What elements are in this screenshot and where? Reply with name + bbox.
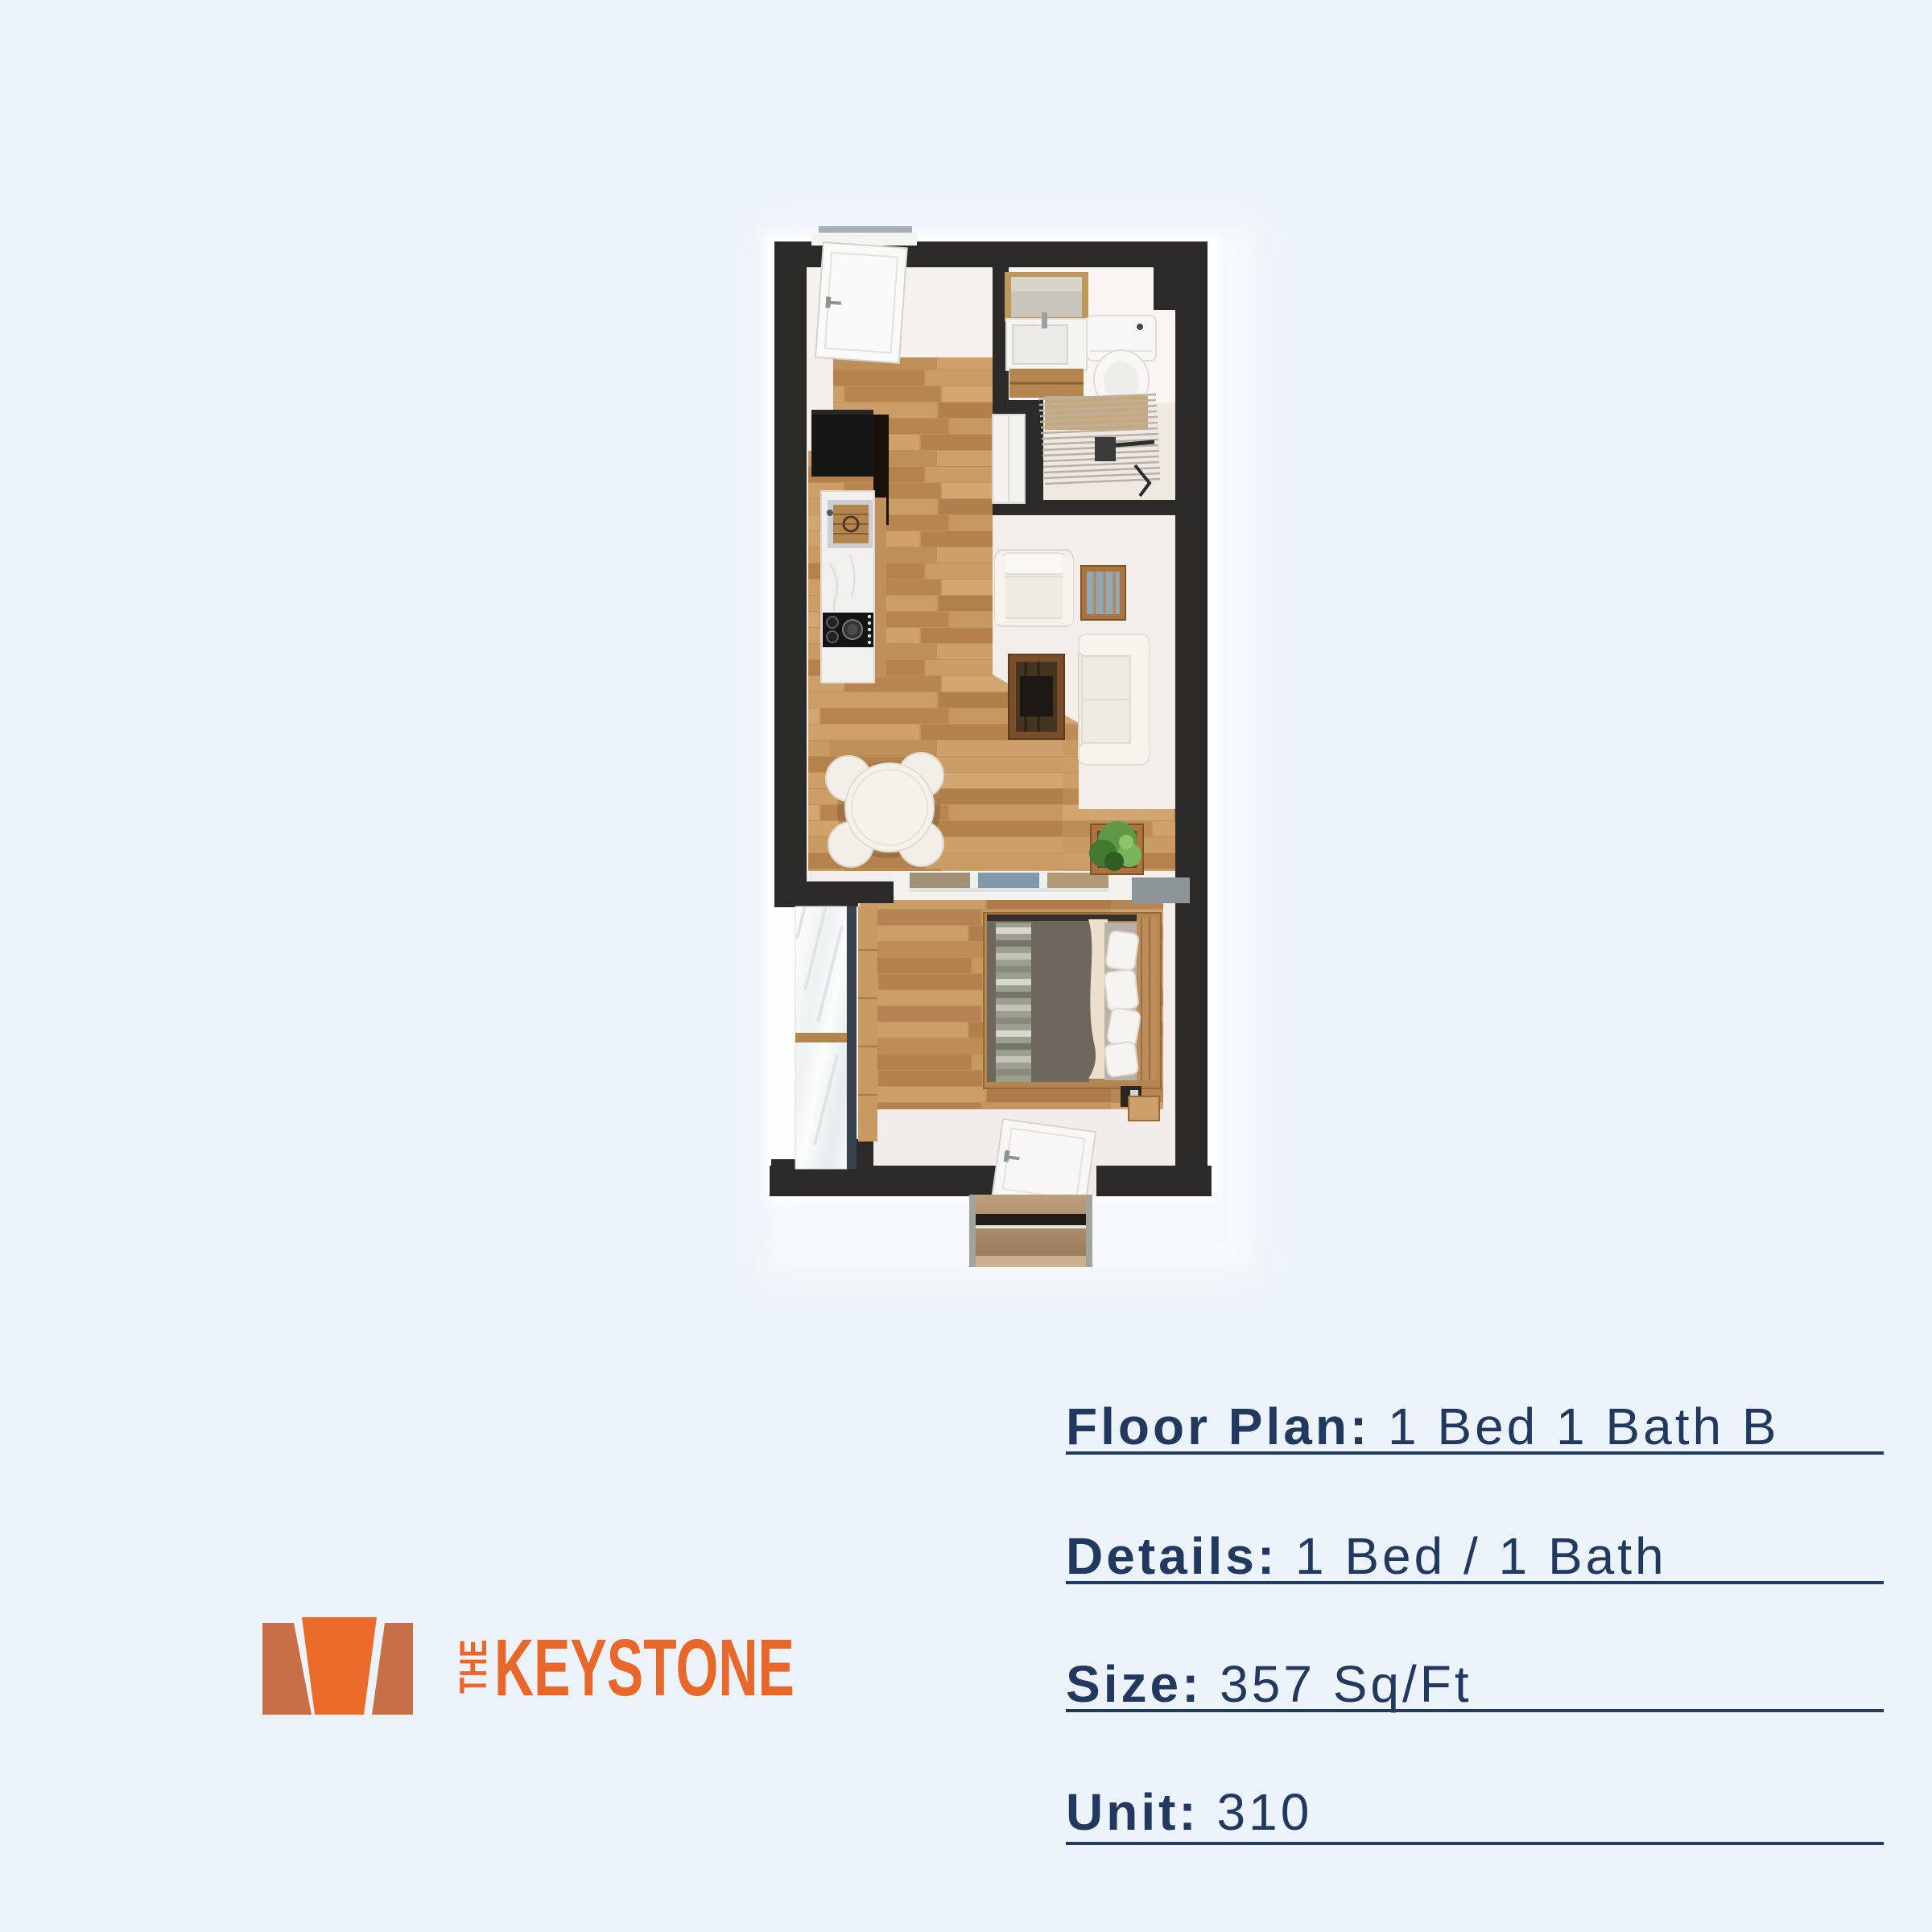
- svg-text:Floor Plan: 1 Bed 1 Bath B: Floor Plan: 1 Bed 1 Bath B: [1066, 1397, 1780, 1455]
- svg-text:Size: 357 Sq/Ft: Size: 357 Sq/Ft: [1066, 1655, 1472, 1713]
- svg-text:KEYSTONE: KEYSTONE: [494, 1624, 795, 1713]
- svg-text:THE: THE: [452, 1639, 494, 1694]
- svg-text:Details: 1 Bed / 1 Bath: Details: 1 Bed / 1 Bath: [1066, 1527, 1667, 1585]
- svg-text:Unit: 310: Unit: 310: [1066, 1783, 1312, 1841]
